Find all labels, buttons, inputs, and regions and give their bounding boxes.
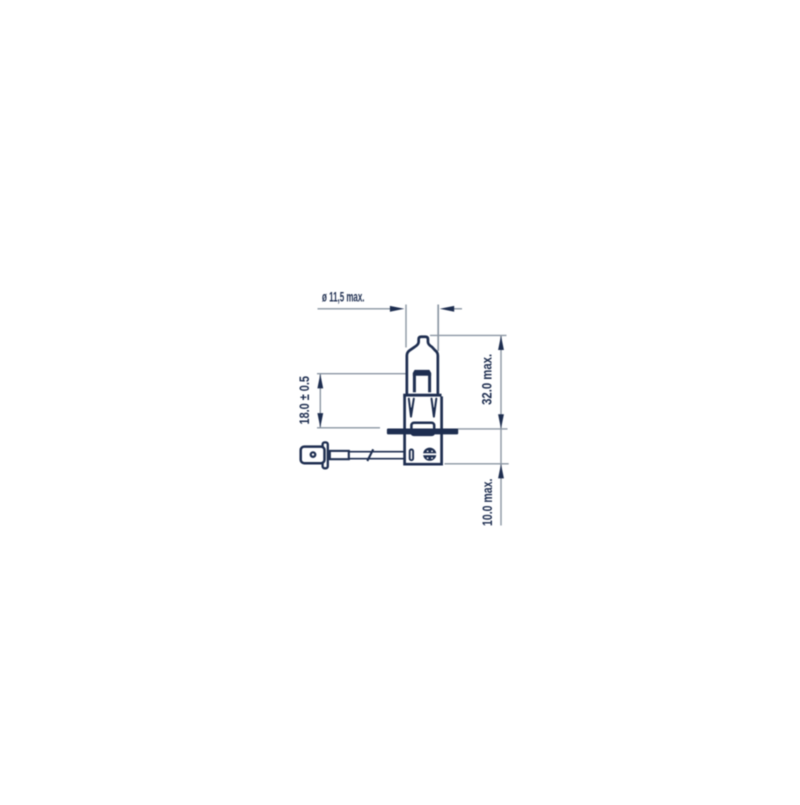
svg-text:ø 11,5 max.: ø 11,5 max.	[322, 290, 364, 305]
svg-text:18.0 ± 0.5: 18.0 ± 0.5	[297, 376, 312, 425]
svg-text:32.0 max.: 32.0 max.	[480, 354, 495, 405]
svg-text:10.0 max.: 10.0 max.	[480, 479, 496, 526]
